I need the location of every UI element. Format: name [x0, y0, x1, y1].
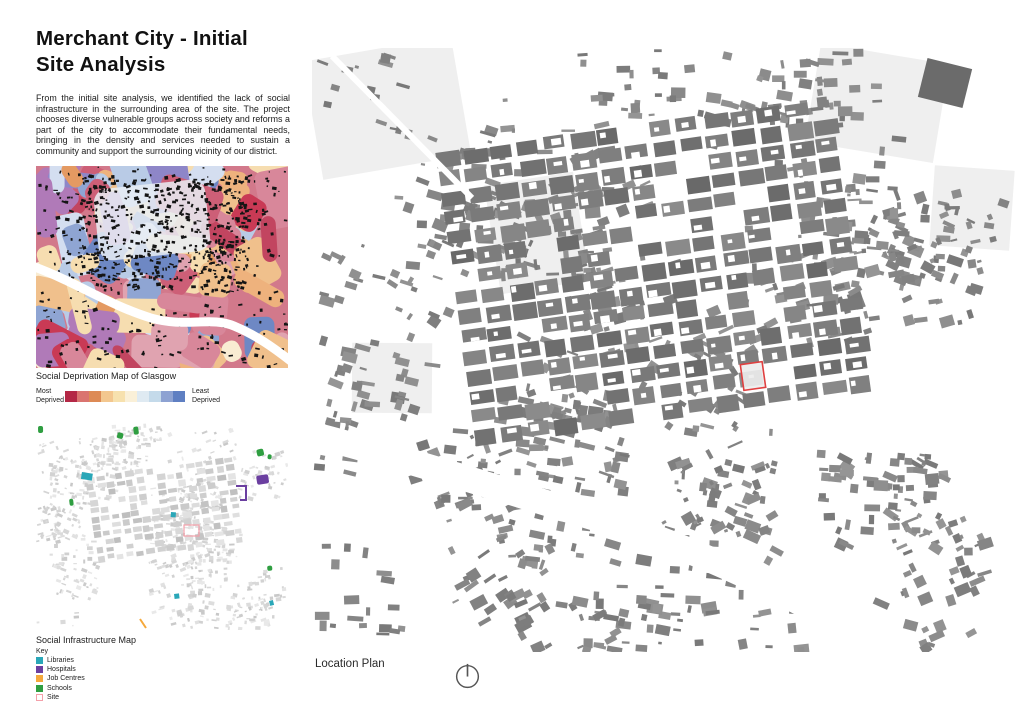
infra-marker-library: [171, 512, 176, 517]
key-label-jobcentre: Job Centres: [47, 675, 85, 682]
deprivation-map-caption: Social Deprivation Map of Glasgow: [36, 371, 176, 381]
location-plan-map: [312, 48, 1016, 652]
infra-marker-library: [269, 600, 274, 606]
key-swatch-jobcentre: [36, 675, 43, 682]
presentation-board: Merchant City - Initial Site Analysis Fr…: [0, 0, 1024, 724]
social-infrastructure-map: [36, 420, 288, 630]
legend-swatch: [137, 391, 149, 402]
key-swatch-hospital: [36, 666, 43, 673]
key-label-hospital: Hospitals: [47, 666, 76, 673]
infra-marker-school: [69, 499, 74, 506]
legend-swatch: [101, 391, 113, 402]
infrastructure-key-list: LibrariesHospitalsJob CentresSchoolsSite: [36, 657, 85, 701]
legend-swatch: [113, 391, 125, 402]
legend-swatch: [149, 391, 161, 402]
infra-marker-jobcentre: [140, 619, 146, 628]
key-label-library: Libraries: [47, 657, 74, 664]
key-label-site: Site: [47, 694, 59, 701]
legend-swatch: [173, 391, 185, 402]
site-outline: [740, 362, 765, 391]
legend-swatch: [77, 391, 89, 402]
key-item-school: Schools: [36, 685, 85, 692]
key-item-hospital: Hospitals: [36, 666, 85, 673]
infra-marker-school: [267, 565, 272, 570]
key-item-site: Site: [36, 694, 85, 701]
deprivation-legend-swatches: [65, 391, 185, 402]
location-plan-caption: Location Plan: [315, 658, 385, 670]
social-deprivation-map: [36, 166, 288, 368]
key-item-jobcentre: Job Centres: [36, 675, 85, 682]
key-label-school: Schools: [47, 685, 72, 692]
north-arrow-icon: [452, 660, 483, 691]
infra-marker-hospital: [256, 474, 269, 485]
infra-marker-school: [38, 426, 43, 433]
legend-most-label: Most Deprived: [36, 387, 65, 405]
infrastructure-map-caption: Social Infrastructure Map: [36, 635, 136, 645]
deprivation-legend: Most Deprived Least Deprived: [36, 387, 220, 405]
infra-marker-library: [174, 593, 180, 599]
key-title: Key: [36, 648, 48, 655]
legend-swatch: [161, 391, 173, 402]
page-title: Merchant City - Initial Site Analysis: [36, 26, 248, 78]
legend-swatch: [65, 391, 77, 402]
legend-swatch: [89, 391, 101, 402]
key-swatch-school: [36, 685, 43, 692]
infra-marker-school: [267, 454, 272, 460]
intro-paragraph: From the initial site analysis, we ident…: [36, 93, 290, 157]
legend-least-label: Least Deprived: [192, 387, 220, 405]
legend-swatch: [125, 391, 137, 402]
key-item-library: Libraries: [36, 657, 85, 664]
key-swatch-library: [36, 657, 43, 664]
key-swatch-site: [36, 694, 43, 701]
